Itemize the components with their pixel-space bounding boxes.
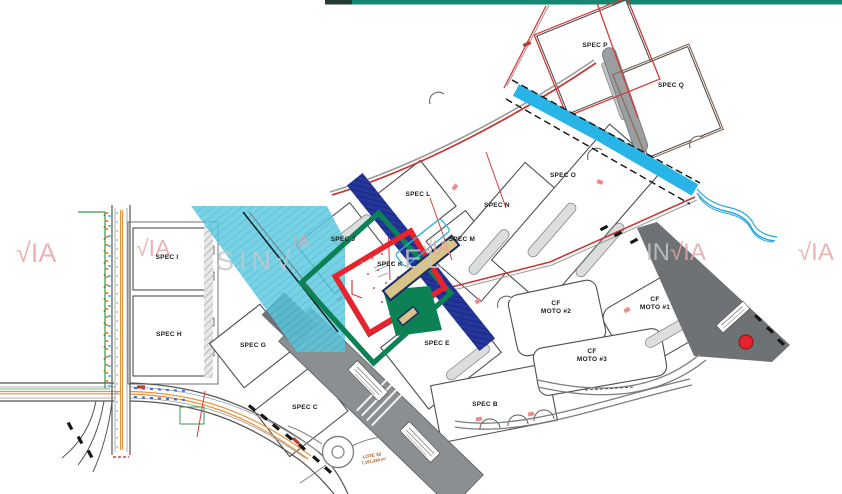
label-spec-j: SPEC J (331, 236, 356, 243)
site-plan-canvas: √IA √IA SIN√ IA EL √IA IN√IA √IA SPEC I … (0, 0, 842, 494)
label-spec-g: SPEC G (240, 342, 266, 349)
watermark-invia: IN√IA (646, 239, 706, 266)
label-spec-n: SPEC N (484, 202, 510, 209)
watermark-via: √IA (16, 238, 56, 268)
top-bar-dark (325, 0, 352, 5)
label-spec-k: SPEC K (377, 261, 403, 268)
label-spec-i: SPEC I (156, 254, 179, 261)
label-spec-p: SPEC P (582, 42, 608, 49)
label-spec-h: SPEC H (156, 331, 182, 338)
label-spec-e: SPEC E (424, 340, 450, 347)
watermark-via: √IA (798, 239, 834, 266)
top-color-bars (325, 0, 842, 5)
red-marker-dot (739, 335, 753, 349)
label-spec-m: SPEC M (449, 236, 475, 243)
hatched-strip (204, 226, 213, 378)
watermark-via: √IA (422, 238, 451, 259)
label-spec-q: SPEC Q (658, 82, 684, 89)
label-spec-b: SPEC B (472, 401, 498, 408)
label-spec-o: SPEC O (550, 172, 576, 179)
watermark-ia: IA (293, 232, 310, 251)
site-plan-drawing: √IA √IA SIN√ IA EL √IA IN√IA √IA SPEC I … (0, 0, 842, 494)
watermark-sinv: SIN√ (216, 246, 296, 276)
label-spec-l: SPEC L (406, 191, 431, 198)
label-spec-c: SPEC C (292, 404, 318, 411)
